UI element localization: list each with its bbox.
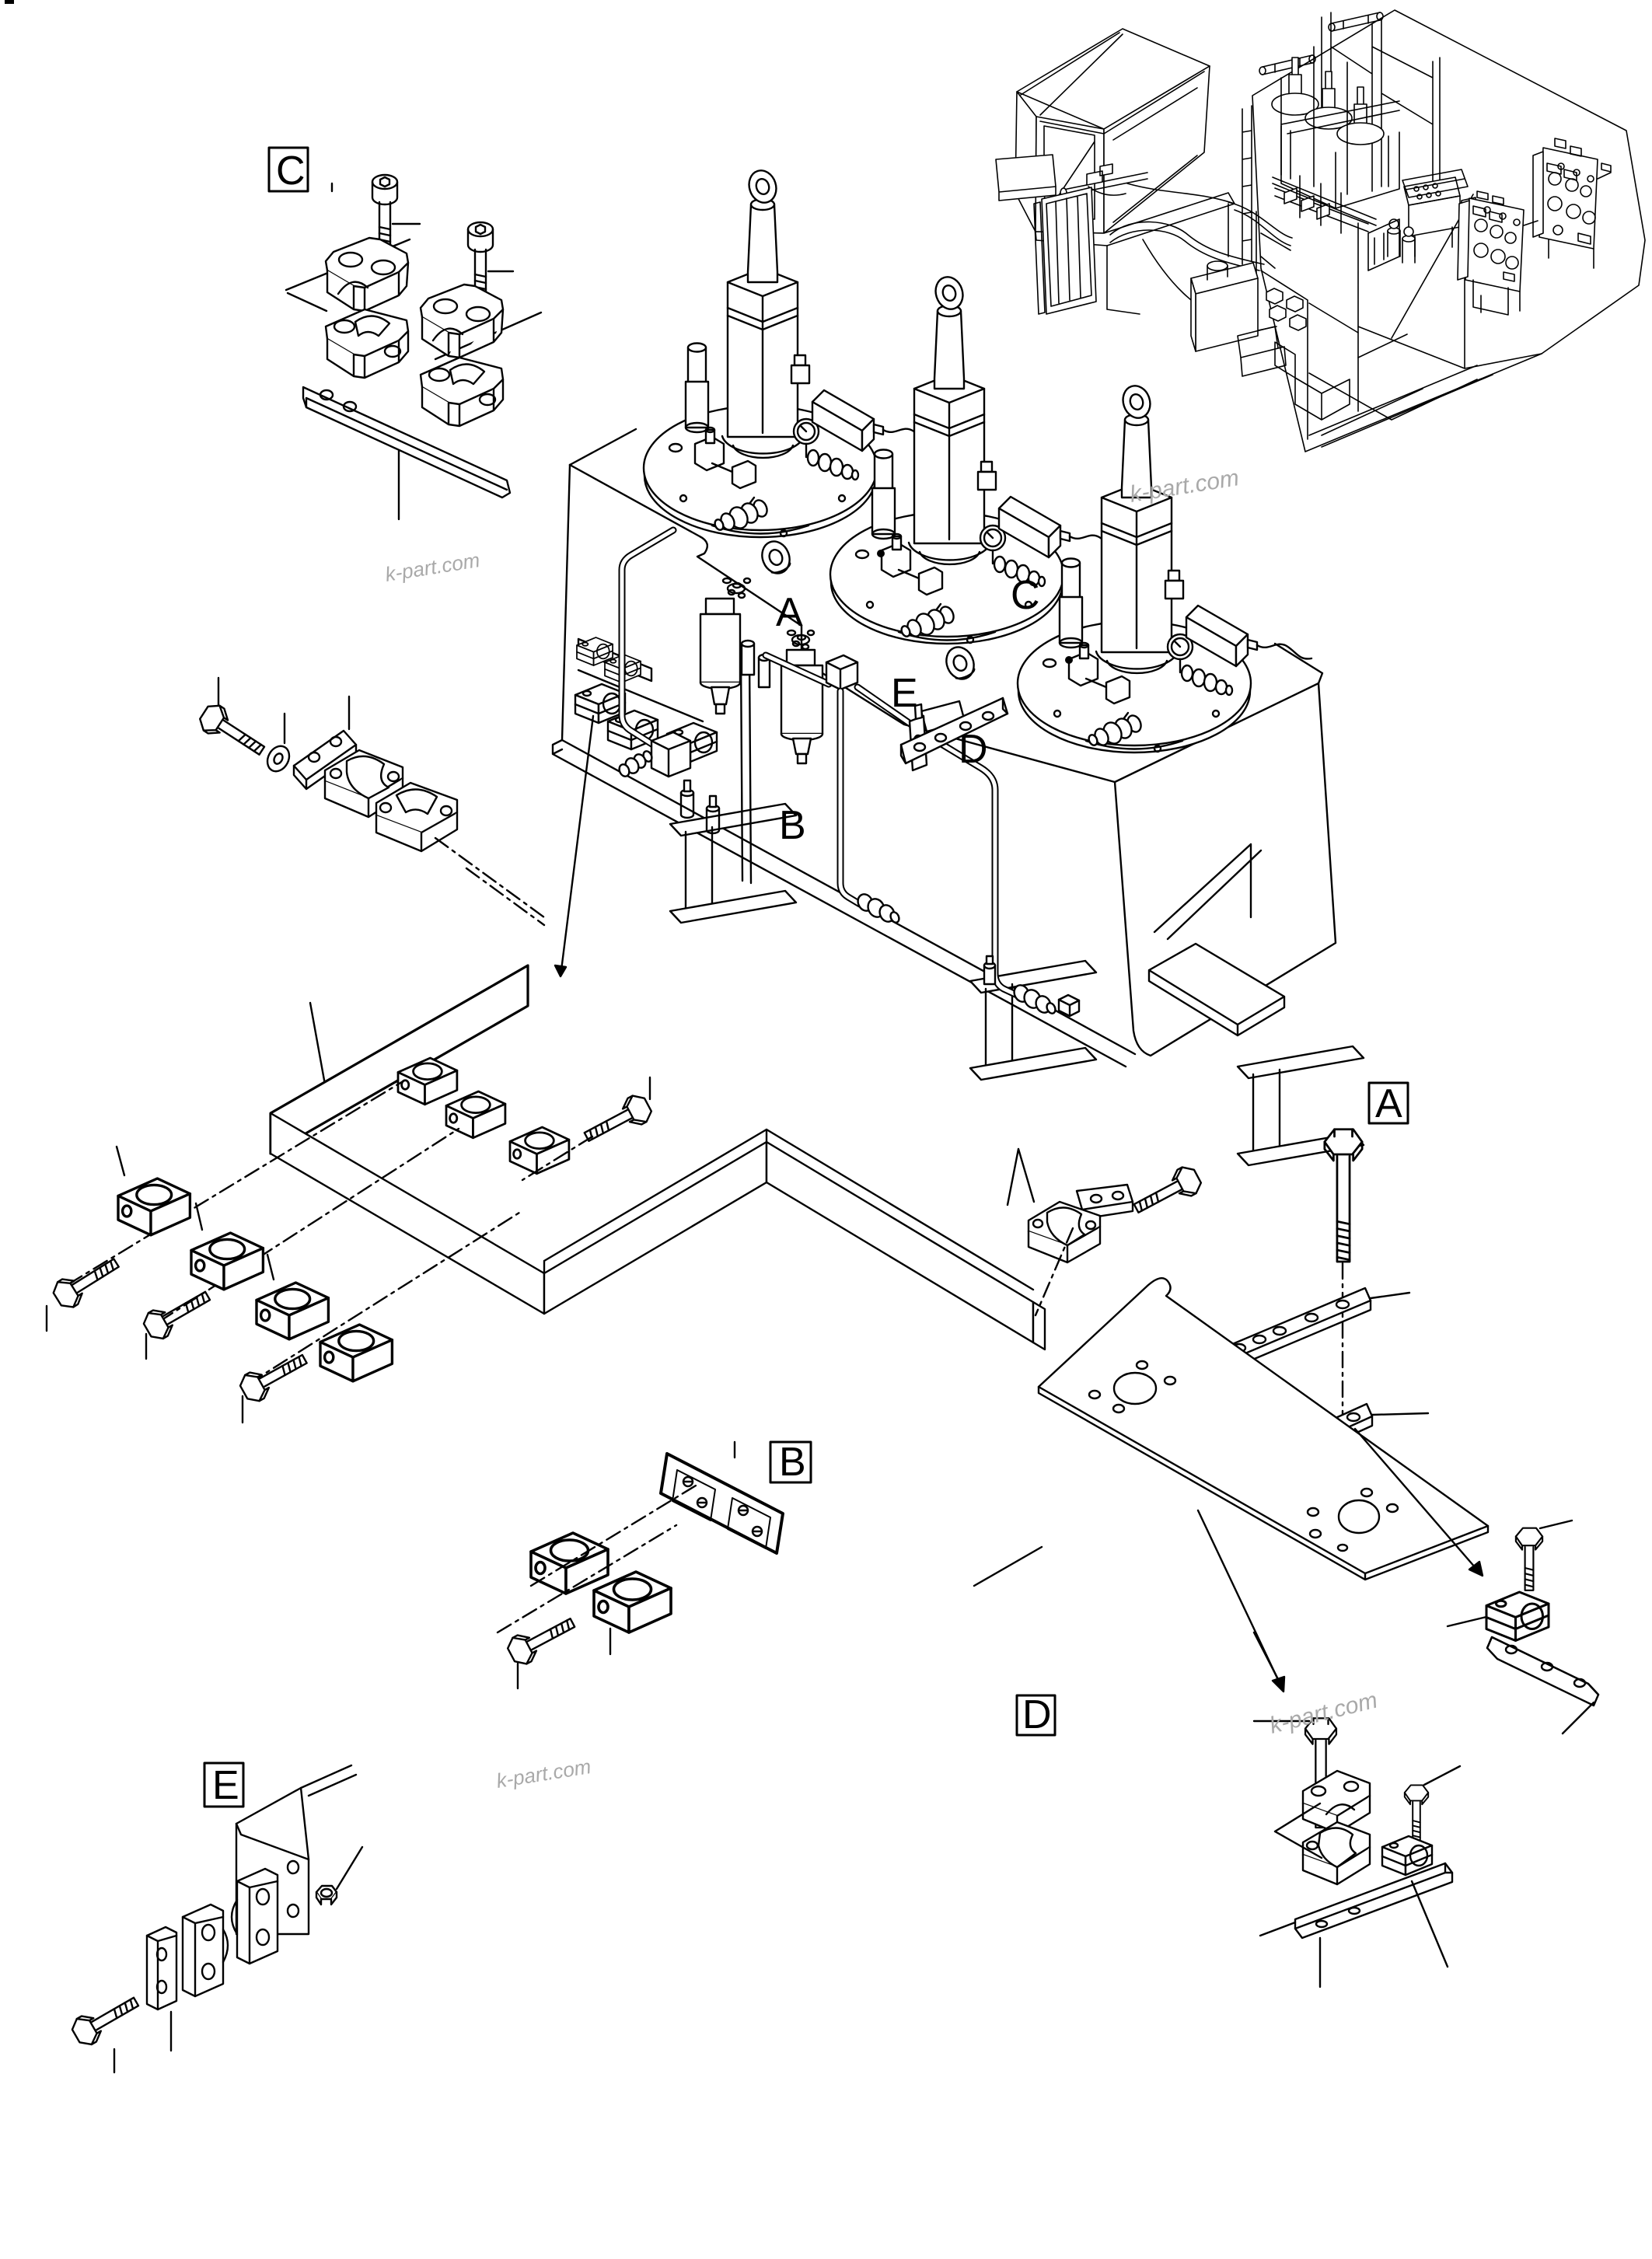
svg-text:D: D xyxy=(1022,1692,1052,1737)
svg-text:B: B xyxy=(779,803,806,848)
svg-text:A: A xyxy=(776,590,803,635)
svg-text:C: C xyxy=(1011,573,1040,618)
svg-text:C: C xyxy=(276,148,306,194)
svg-text:D: D xyxy=(959,727,988,772)
svg-text:k-part.com: k-part.com xyxy=(494,1754,592,1793)
svg-text:E: E xyxy=(212,1763,239,1808)
svg-text:B: B xyxy=(779,1440,806,1485)
svg-text:k-part.com: k-part.com xyxy=(383,548,481,586)
svg-text:E: E xyxy=(891,671,918,716)
svg-text:A: A xyxy=(1375,1081,1402,1126)
